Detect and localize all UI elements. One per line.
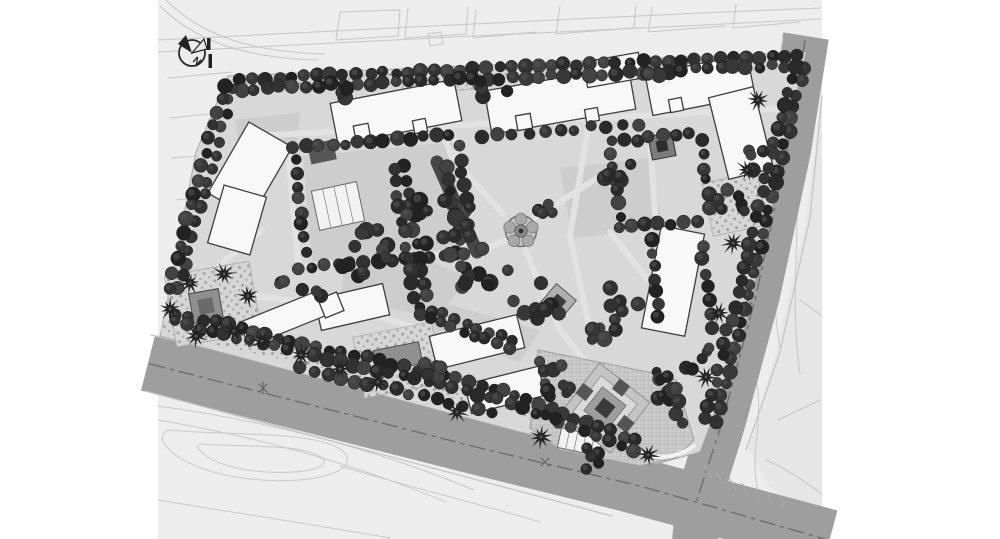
site-plan-drawing: N xyxy=(0,0,1000,539)
scanned-plan-page: N xyxy=(0,0,1000,539)
